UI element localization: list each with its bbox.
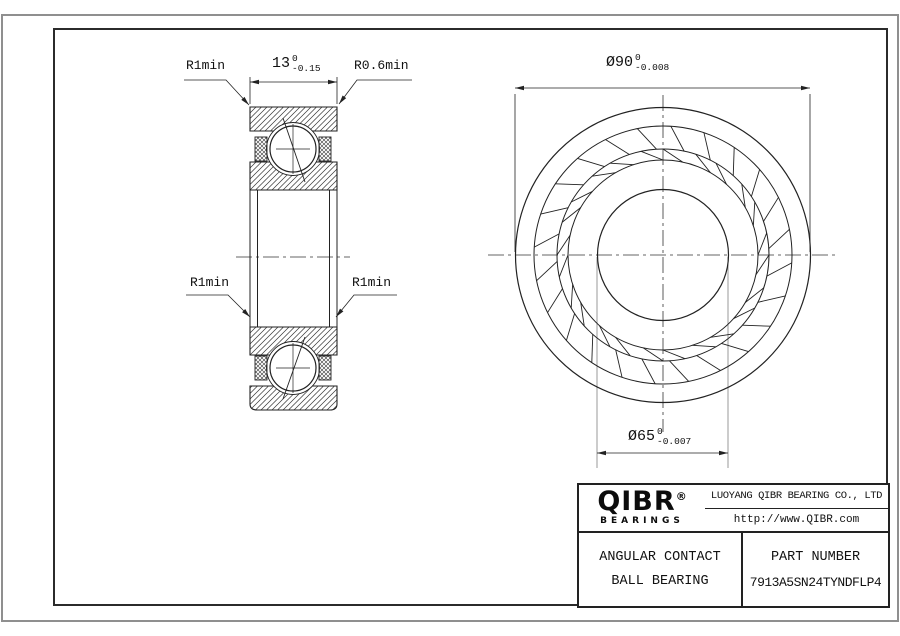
radius-label-top-right: R0.6min [354, 59, 409, 72]
front-view-centerlines [488, 95, 838, 432]
bore-diameter-tolerance: 0 -0.007 [657, 427, 691, 448]
bore-diameter-value: Ø65 [628, 429, 655, 444]
company-cell: LUOYANG QIBR BEARING CO., LTD http://www… [705, 485, 888, 531]
outer-diameter-tolerance: 0 -0.008 [635, 53, 669, 74]
product-name-line1: ANGULAR CONTACT [599, 550, 721, 565]
brand-logo: QIBR® BEARINGS [579, 485, 705, 531]
section-view [236, 107, 350, 410]
title-block-body-row: ANGULAR CONTACT BALL BEARING PART NUMBER… [579, 531, 888, 606]
part-number-label: PART NUMBER [771, 550, 860, 565]
radius-label-mid-right: R1min [352, 276, 391, 289]
brand-wordmark: QIBR® [597, 490, 686, 514]
drawing-page: R1min 13 0 -0.15 R0.6min R1min R1min Ø90… [0, 0, 900, 636]
bore-diameter-dimension: Ø65 0 -0.007 [628, 429, 691, 450]
brand-subtitle: BEARINGS [600, 516, 684, 526]
registered-mark: ® [676, 490, 687, 503]
outer-diameter-value: Ø90 [606, 55, 633, 70]
company-name: LUOYANG QIBR BEARING CO., LTD [705, 485, 888, 509]
product-name-cell: ANGULAR CONTACT BALL BEARING [579, 533, 743, 606]
part-number-value: 7913A5SN24TYNDFLP4 [750, 575, 881, 590]
title-block-header-row: QIBR® BEARINGS LUOYANG QIBR BEARING CO.,… [579, 485, 888, 531]
radius-label-mid-left: R1min [190, 276, 229, 289]
width-dimension: 13 0 -0.15 [272, 56, 321, 77]
product-name-line2: BALL BEARING [611, 574, 708, 589]
outer-diameter-dimension: Ø90 0 -0.008 [606, 55, 669, 76]
radius-label-top-left: R1min [186, 59, 225, 72]
company-website: http://www.QIBR.com [705, 509, 888, 532]
width-value: 13 [272, 56, 290, 71]
width-tolerance: 0 -0.15 [292, 54, 321, 75]
title-block: QIBR® BEARINGS LUOYANG QIBR BEARING CO.,… [577, 483, 890, 608]
part-number-cell: PART NUMBER 7913A5SN24TYNDFLP4 [743, 533, 888, 606]
